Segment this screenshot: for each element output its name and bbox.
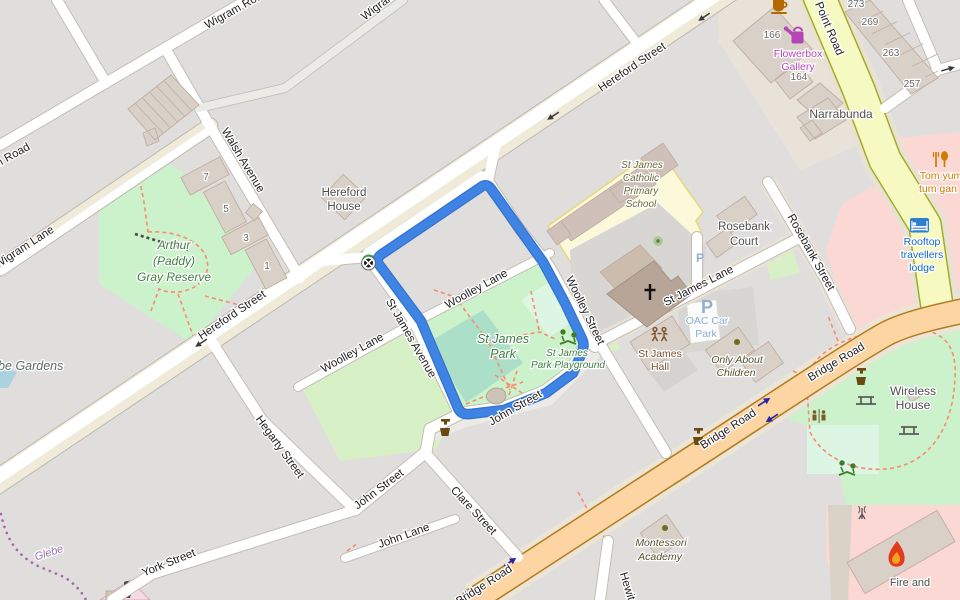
svg-text:5: 5 xyxy=(223,204,229,215)
svg-text:Primary: Primary xyxy=(624,186,659,197)
svg-text:273: 273 xyxy=(848,0,865,10)
svg-text:Rosebank: Rosebank xyxy=(718,221,770,233)
svg-text:1: 1 xyxy=(264,261,270,272)
svg-text:Wireless: Wireless xyxy=(890,384,936,398)
svg-text:P: P xyxy=(701,297,713,317)
svg-text:Flowerbox: Flowerbox xyxy=(774,48,823,60)
svg-text:Hall: Hall xyxy=(651,361,669,373)
svg-text:Children: Children xyxy=(716,367,755,379)
svg-text:House: House xyxy=(896,398,931,412)
svg-text:Park: Park xyxy=(695,328,717,340)
svg-text:Catholic: Catholic xyxy=(623,173,659,184)
svg-text:lodge: lodge xyxy=(909,262,935,274)
svg-text:164: 164 xyxy=(791,72,808,83)
svg-text:Tom yum: Tom yum xyxy=(920,170,960,182)
svg-text:St James: St James xyxy=(621,160,663,171)
svg-text:Hereford: Hereford xyxy=(322,187,367,199)
svg-text:263: 263 xyxy=(883,48,900,59)
svg-text:Park: Park xyxy=(490,347,516,361)
svg-text:St James: St James xyxy=(477,332,529,346)
svg-text:Arthur: Arthur xyxy=(157,238,192,252)
svg-text:School: School xyxy=(626,199,657,210)
svg-text:Court: Court xyxy=(730,236,759,248)
svg-text:House: House xyxy=(327,201,360,213)
svg-text:166: 166 xyxy=(764,30,781,41)
svg-text:3: 3 xyxy=(243,233,249,244)
svg-text:Park Playground: Park Playground xyxy=(531,360,605,371)
svg-text:St James: St James xyxy=(546,348,588,359)
svg-text:P: P xyxy=(696,251,704,265)
svg-text:7: 7 xyxy=(203,172,209,183)
svg-text:Montessori: Montessori xyxy=(635,537,687,549)
svg-text:Rooftop: Rooftop xyxy=(904,236,941,248)
svg-text:St James: St James xyxy=(638,348,682,360)
svg-text:travellers: travellers xyxy=(901,249,944,261)
svg-text:Fire and: Fire and xyxy=(890,577,930,589)
svg-text:269: 269 xyxy=(862,17,879,28)
svg-text:257: 257 xyxy=(904,79,921,90)
svg-text:Only About: Only About xyxy=(711,354,764,366)
svg-text:Glebe Gardens: Glebe Gardens xyxy=(0,359,63,373)
svg-text:tum gan: tum gan xyxy=(919,183,957,195)
svg-text:(Paddy): (Paddy) xyxy=(153,254,195,268)
svg-text:OAC Car: OAC Car xyxy=(686,315,729,327)
svg-text:Academy: Academy xyxy=(637,551,683,563)
svg-text:Narrabunda: Narrabunda xyxy=(809,107,873,121)
svg-text:Gray Reserve: Gray Reserve xyxy=(137,270,211,284)
